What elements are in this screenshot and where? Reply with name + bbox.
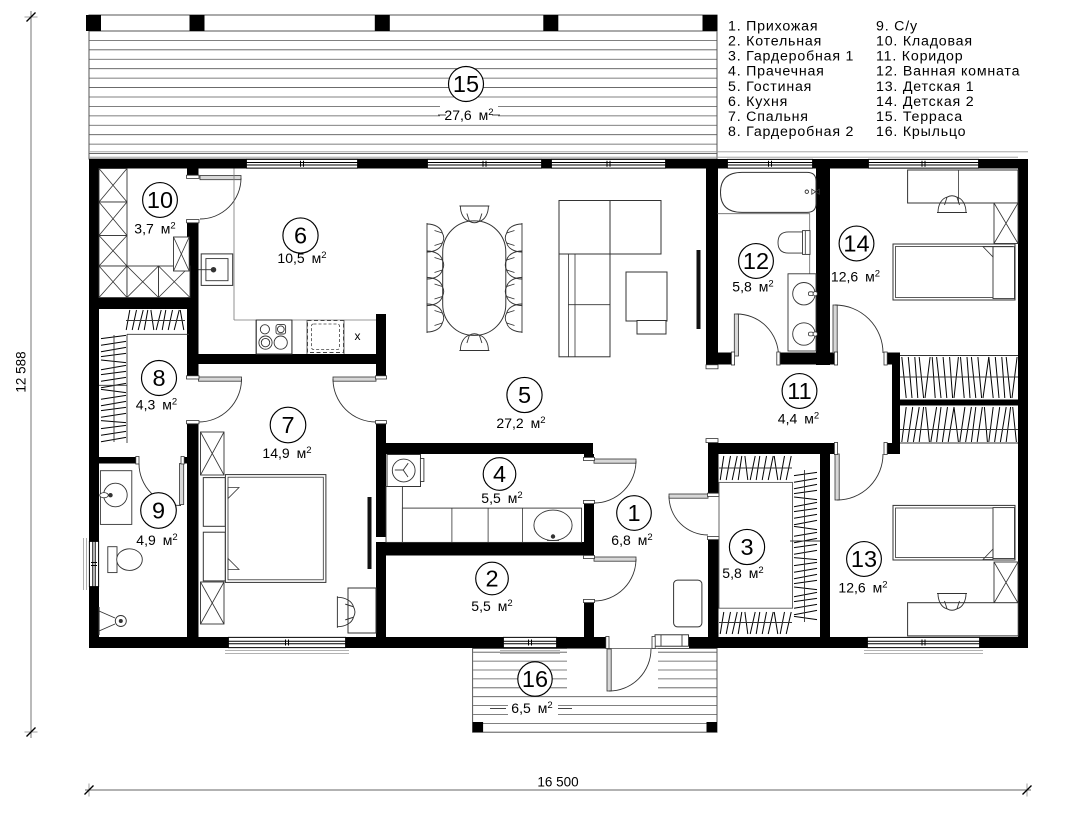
- svg-text:12 588: 12 588: [14, 351, 29, 392]
- svg-text:10,5 м2: 10,5 м2: [277, 250, 326, 266]
- svg-text:16. Крыльцо: 16. Крыльцо: [876, 124, 966, 140]
- svg-text:14. Детская 2: 14. Детская 2: [876, 94, 974, 110]
- svg-text:2. Котельная: 2. Котельная: [728, 33, 822, 49]
- svg-text:11. Коридор: 11. Коридор: [876, 49, 963, 65]
- svg-text:1. Прихожая: 1. Прихожая: [728, 18, 818, 34]
- svg-text:15. Терраса: 15. Терраса: [876, 109, 963, 125]
- svg-text:3. Гардеробная 1: 3. Гардеробная 1: [728, 49, 854, 65]
- svg-text:5,5 м2: 5,5 м2: [471, 598, 512, 614]
- svg-text:1: 1: [627, 500, 640, 526]
- svg-text:16 500: 16 500: [537, 775, 578, 790]
- svg-text:14: 14: [843, 231, 869, 257]
- svg-text:5,8 м2: 5,8 м2: [732, 279, 773, 295]
- svg-text:4. Прачечная: 4. Прачечная: [728, 64, 825, 80]
- svg-text:5,5 м2: 5,5 м2: [481, 490, 522, 506]
- svg-text:9. С/у: 9. С/у: [876, 18, 918, 34]
- svg-text:12. Ванная комната: 12. Ванная комната: [876, 64, 1020, 80]
- svg-text:12,6 м2: 12,6 м2: [831, 269, 880, 285]
- svg-text:10. Кладовая: 10. Кладовая: [876, 33, 973, 49]
- svg-text:8. Гардеробная 2: 8. Гардеробная 2: [728, 124, 854, 140]
- svg-text:5,8 м2: 5,8 м2: [722, 565, 763, 581]
- svg-text:16: 16: [522, 666, 548, 692]
- svg-text:7: 7: [281, 412, 294, 438]
- svg-text:4,9 м2: 4,9 м2: [136, 532, 177, 548]
- svg-text:6,5 м2: 6,5 м2: [511, 700, 552, 716]
- svg-text:6,8 м2: 6,8 м2: [611, 532, 652, 548]
- svg-text:5: 5: [518, 382, 531, 408]
- svg-text:2: 2: [485, 566, 498, 592]
- svg-text:13. Детская 1: 13. Детская 1: [876, 79, 974, 95]
- svg-text:4,4 м2: 4,4 м2: [778, 411, 819, 427]
- svg-text:6: 6: [294, 223, 307, 249]
- svg-text:27,6 м2: 27,6 м2: [444, 107, 493, 123]
- svg-text:8: 8: [152, 365, 165, 391]
- svg-text:4,3 м2: 4,3 м2: [136, 397, 177, 413]
- svg-text:4: 4: [493, 461, 506, 487]
- svg-text:6. Кухня: 6. Кухня: [728, 94, 788, 110]
- svg-text:x: x: [355, 329, 361, 343]
- svg-text:12: 12: [743, 248, 769, 274]
- svg-text:14,9 м2: 14,9 м2: [262, 445, 311, 461]
- svg-text:10: 10: [147, 187, 173, 213]
- svg-text:12,6 м2: 12,6 м2: [838, 580, 887, 596]
- svg-text:9: 9: [152, 498, 165, 524]
- svg-text:15: 15: [453, 71, 479, 97]
- svg-text:11: 11: [787, 378, 811, 404]
- svg-text:3: 3: [740, 534, 753, 560]
- svg-text:3,7 м2: 3,7 м2: [134, 221, 175, 237]
- svg-text:5. Гостиная: 5. Гостиная: [728, 79, 812, 95]
- svg-text:27,2 м2: 27,2 м2: [496, 415, 545, 431]
- svg-text:13: 13: [851, 546, 877, 572]
- svg-text:7. Спальня: 7. Спальня: [728, 109, 809, 125]
